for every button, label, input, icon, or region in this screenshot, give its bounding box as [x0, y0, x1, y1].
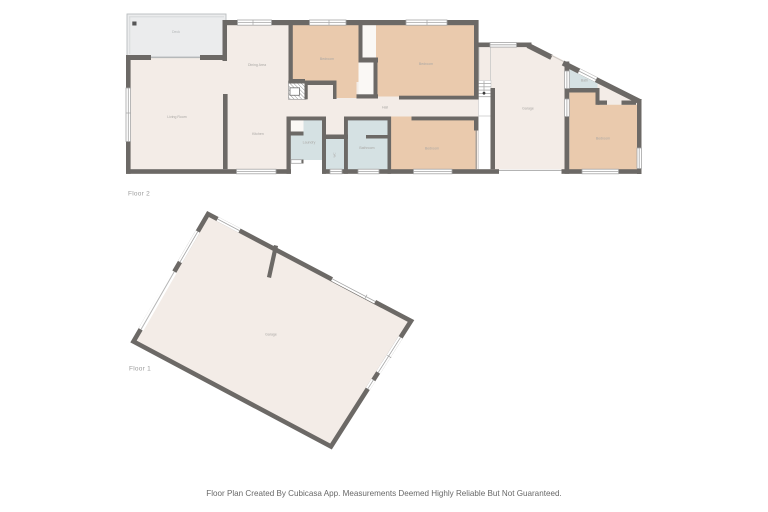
svg-text:Living Room: Living Room: [167, 115, 187, 119]
svg-text:Bedroom: Bedroom: [320, 57, 334, 61]
svg-text:Bedroom: Bedroom: [419, 62, 433, 66]
svg-text:Garage: Garage: [265, 333, 277, 337]
svg-text:Bath: Bath: [581, 79, 588, 83]
svg-text:Dining Area: Dining Area: [248, 63, 266, 67]
svg-text:Bathroom: Bathroom: [359, 146, 374, 150]
svg-text:Kitchen: Kitchen: [252, 132, 264, 136]
svg-text:WC: WC: [333, 152, 337, 158]
svg-text:Bedroom: Bedroom: [596, 137, 610, 141]
svg-text:Laundry: Laundry: [303, 141, 316, 145]
svg-text:Bedroom: Bedroom: [425, 147, 439, 151]
svg-text:Deck: Deck: [172, 30, 180, 34]
svg-text:Floor 2: Floor 2: [128, 191, 150, 198]
svg-text:Floor Plan Created By Cubicasa: Floor Plan Created By Cubicasa App. Meas…: [206, 489, 561, 498]
svg-text:Floor 1: Floor 1: [129, 366, 151, 373]
svg-text:Hall: Hall: [382, 106, 388, 110]
svg-text:Garage: Garage: [522, 107, 534, 111]
